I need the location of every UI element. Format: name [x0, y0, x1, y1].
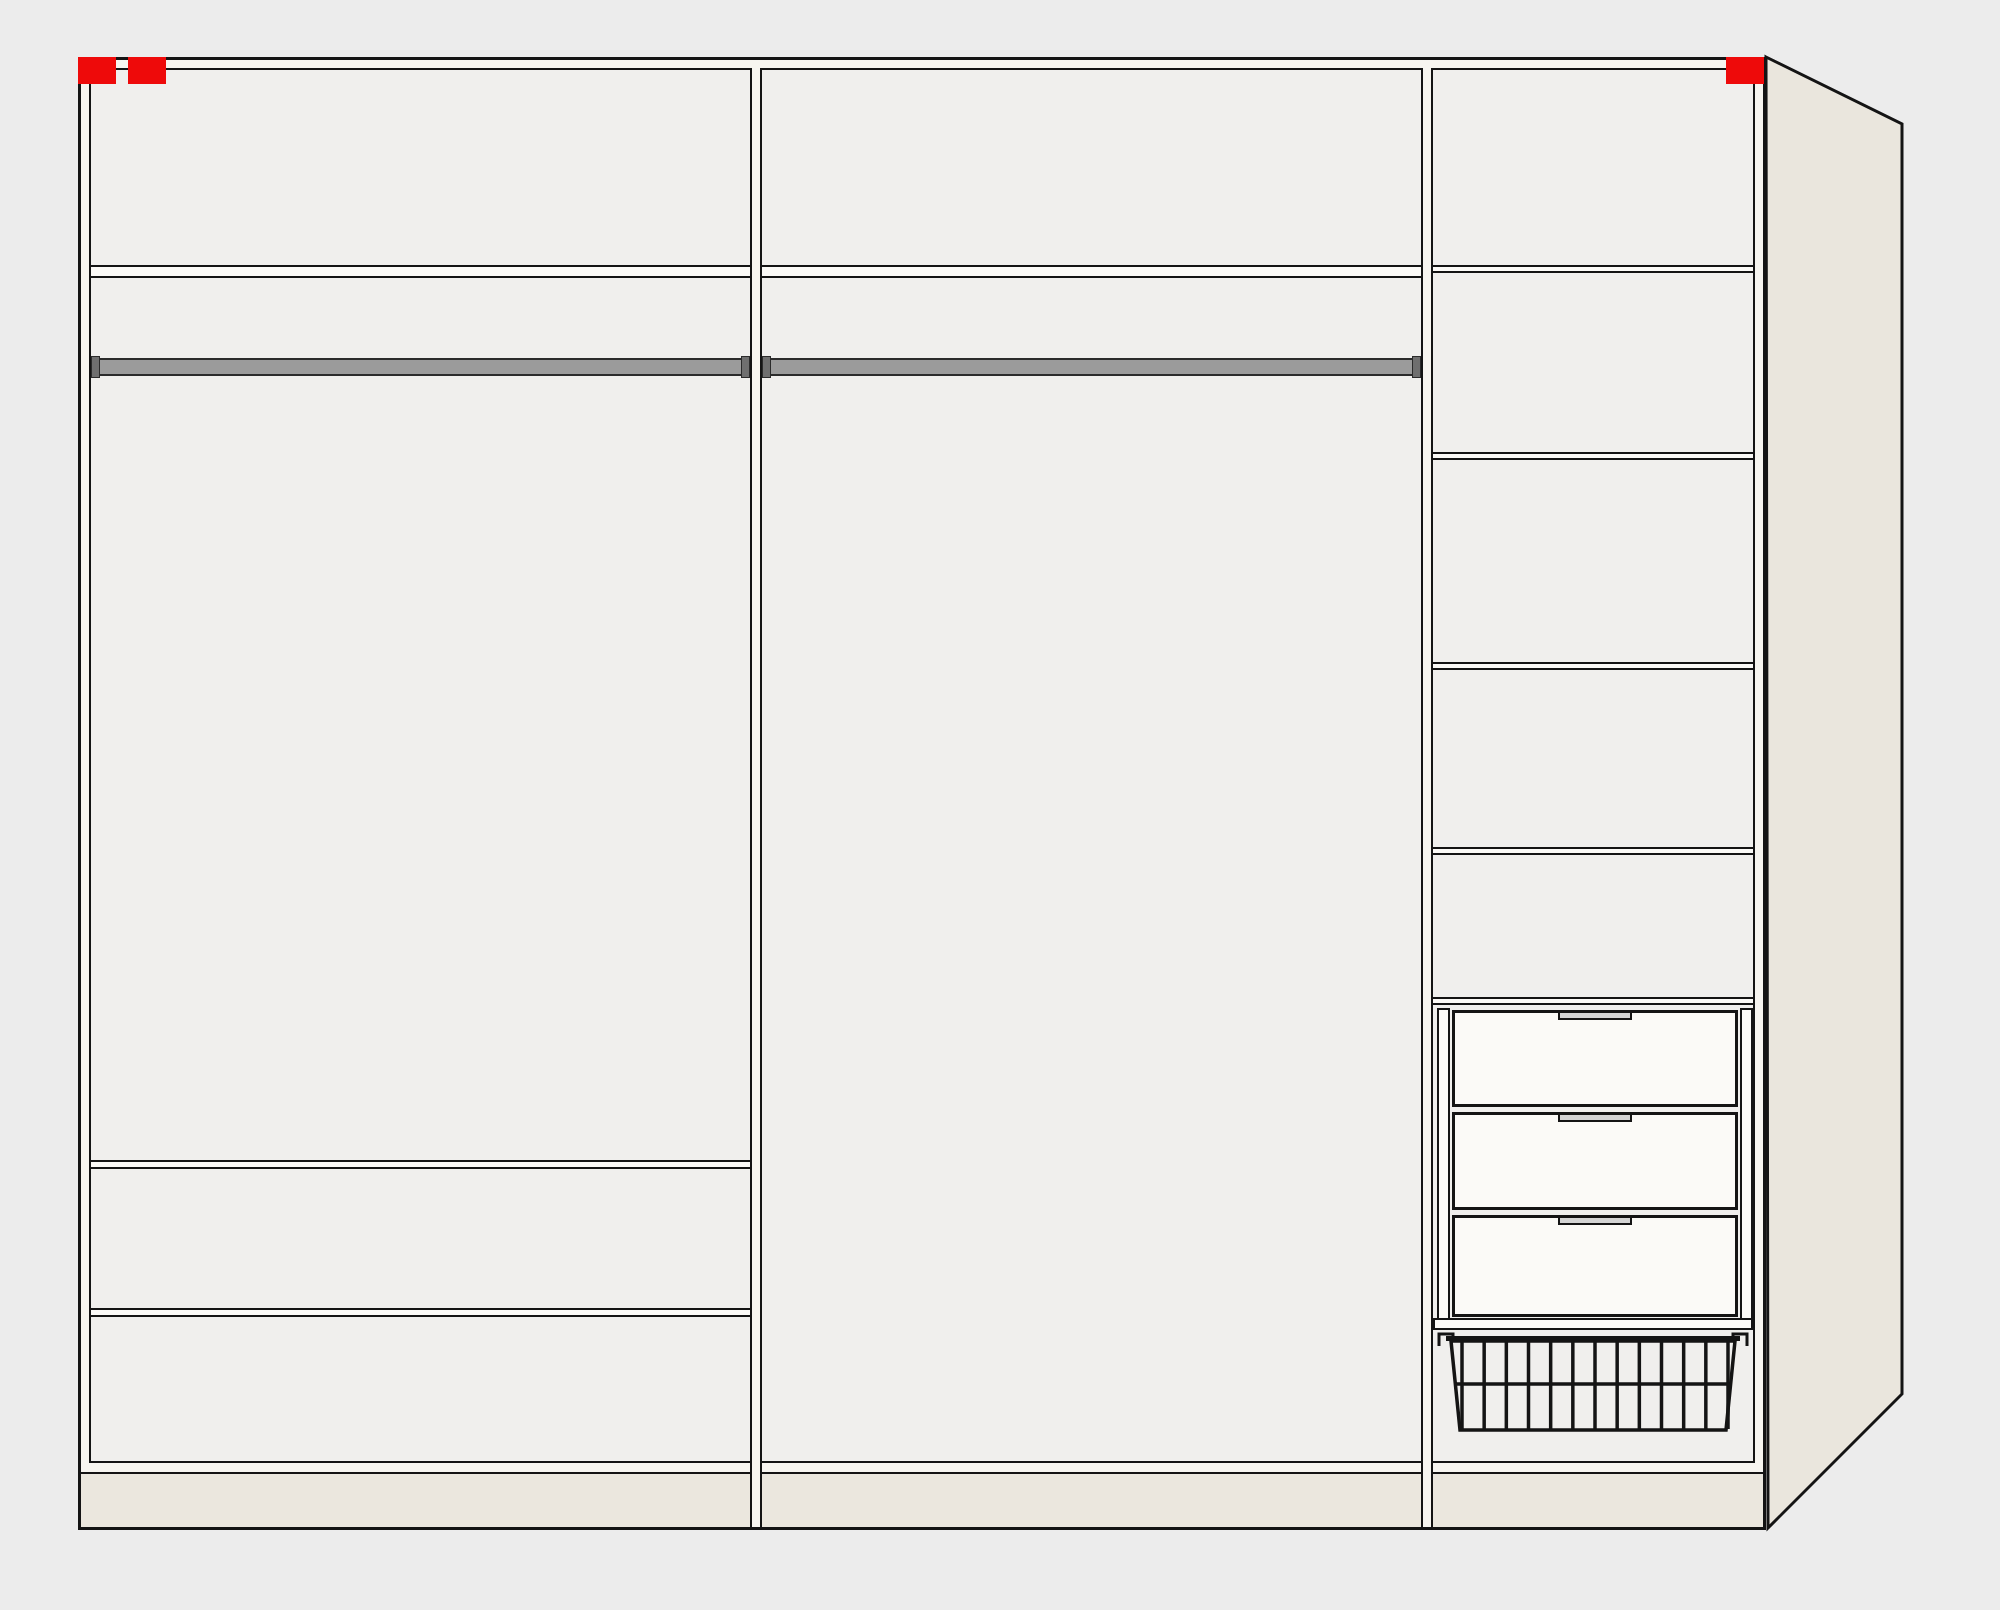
rail-endcap [1412, 356, 1421, 378]
shelf-right-1[interactable] [1433, 265, 1753, 273]
hanging-rail-middle[interactable] [762, 358, 1421, 376]
shelf-left-lower-2[interactable] [91, 1308, 750, 1317]
rail-endcap [91, 356, 100, 378]
drawer-handle[interactable] [1558, 1011, 1632, 1020]
shelf-right-5[interactable] [1433, 997, 1753, 1005]
wardrobe-configurator-canvas [0, 0, 2000, 1610]
plinth [81, 1474, 1763, 1527]
drawer-unit-base [1433, 1318, 1753, 1330]
marker-top-left-1[interactable] [78, 57, 116, 84]
rail-endcap [762, 356, 771, 378]
hanging-rail-left[interactable] [91, 358, 750, 376]
shelf-right-3[interactable] [1433, 662, 1753, 670]
drawer-runner-right [1740, 1008, 1753, 1330]
top-shelf-middle[interactable] [762, 265, 1421, 278]
drawer-2[interactable] [1452, 1112, 1738, 1210]
divider-middle-right [1421, 1461, 1433, 1527]
divider-left-middle [750, 1461, 762, 1527]
marker-top-left-2[interactable] [128, 57, 166, 84]
drawer-handle[interactable] [1558, 1113, 1632, 1122]
shelf-right-2[interactable] [1433, 452, 1753, 460]
drawer-3[interactable] [1452, 1215, 1738, 1317]
drawer-1[interactable] [1452, 1010, 1738, 1107]
shelf-left-lower-1[interactable] [91, 1160, 750, 1169]
shelf-right-4[interactable] [1433, 847, 1753, 855]
top-shelf-left[interactable] [91, 265, 750, 278]
drawer-handle[interactable] [1558, 1216, 1632, 1225]
rail-endcap [741, 356, 750, 378]
marker-top-right[interactable] [1726, 57, 1764, 84]
drawer-runner-left [1437, 1008, 1450, 1330]
